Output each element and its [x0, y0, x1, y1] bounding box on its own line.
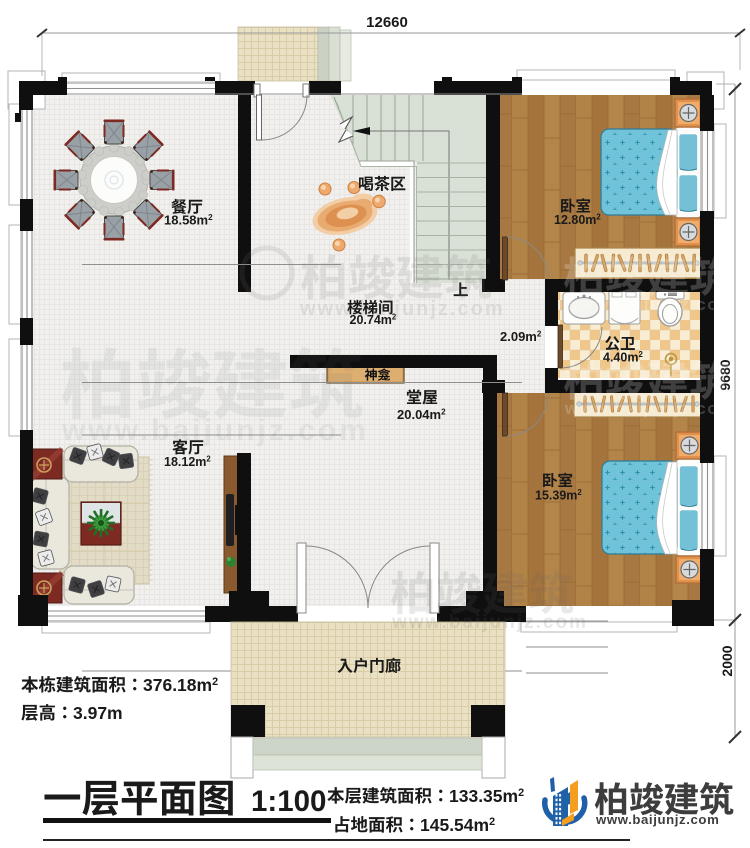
svg-text:www.baijunjz.com: www.baijunjz.com: [61, 414, 369, 447]
svg-text:www.baijunjz.com: www.baijunjz.com: [299, 298, 505, 320]
svg-text:18.12m2: 18.12m2: [164, 455, 211, 469]
svg-text:15.39m2: 15.39m2: [535, 488, 582, 502]
svg-text:2.09m2: 2.09m2: [500, 329, 542, 344]
svg-text:www.baijunjz.com: www.baijunjz.com: [391, 612, 588, 633]
svg-text:2000: 2000: [719, 645, 735, 676]
svg-text:12.80m2: 12.80m2: [554, 213, 601, 227]
svg-text:3.97m: 3.97m: [73, 703, 123, 723]
svg-text:1:100: 1:100: [251, 785, 326, 818]
svg-text:4.40m2: 4.40m2: [603, 350, 643, 364]
svg-text:20.04m2: 20.04m2: [397, 407, 446, 422]
svg-text:www.baijunjz.com: www.baijunjz.com: [564, 399, 736, 418]
svg-text:133.35m2: 133.35m2: [449, 786, 524, 806]
svg-text:376.18m2: 376.18m2: [143, 675, 218, 695]
svg-text:www.baijunjz.com: www.baijunjz.com: [595, 812, 719, 827]
svg-text:145.54m2: 145.54m2: [420, 815, 495, 835]
svg-text:12660: 12660: [366, 14, 408, 31]
svg-text:18.58m2: 18.58m2: [164, 213, 213, 228]
svg-text:www.baijunjz.com: www.baijunjz.com: [564, 295, 736, 314]
